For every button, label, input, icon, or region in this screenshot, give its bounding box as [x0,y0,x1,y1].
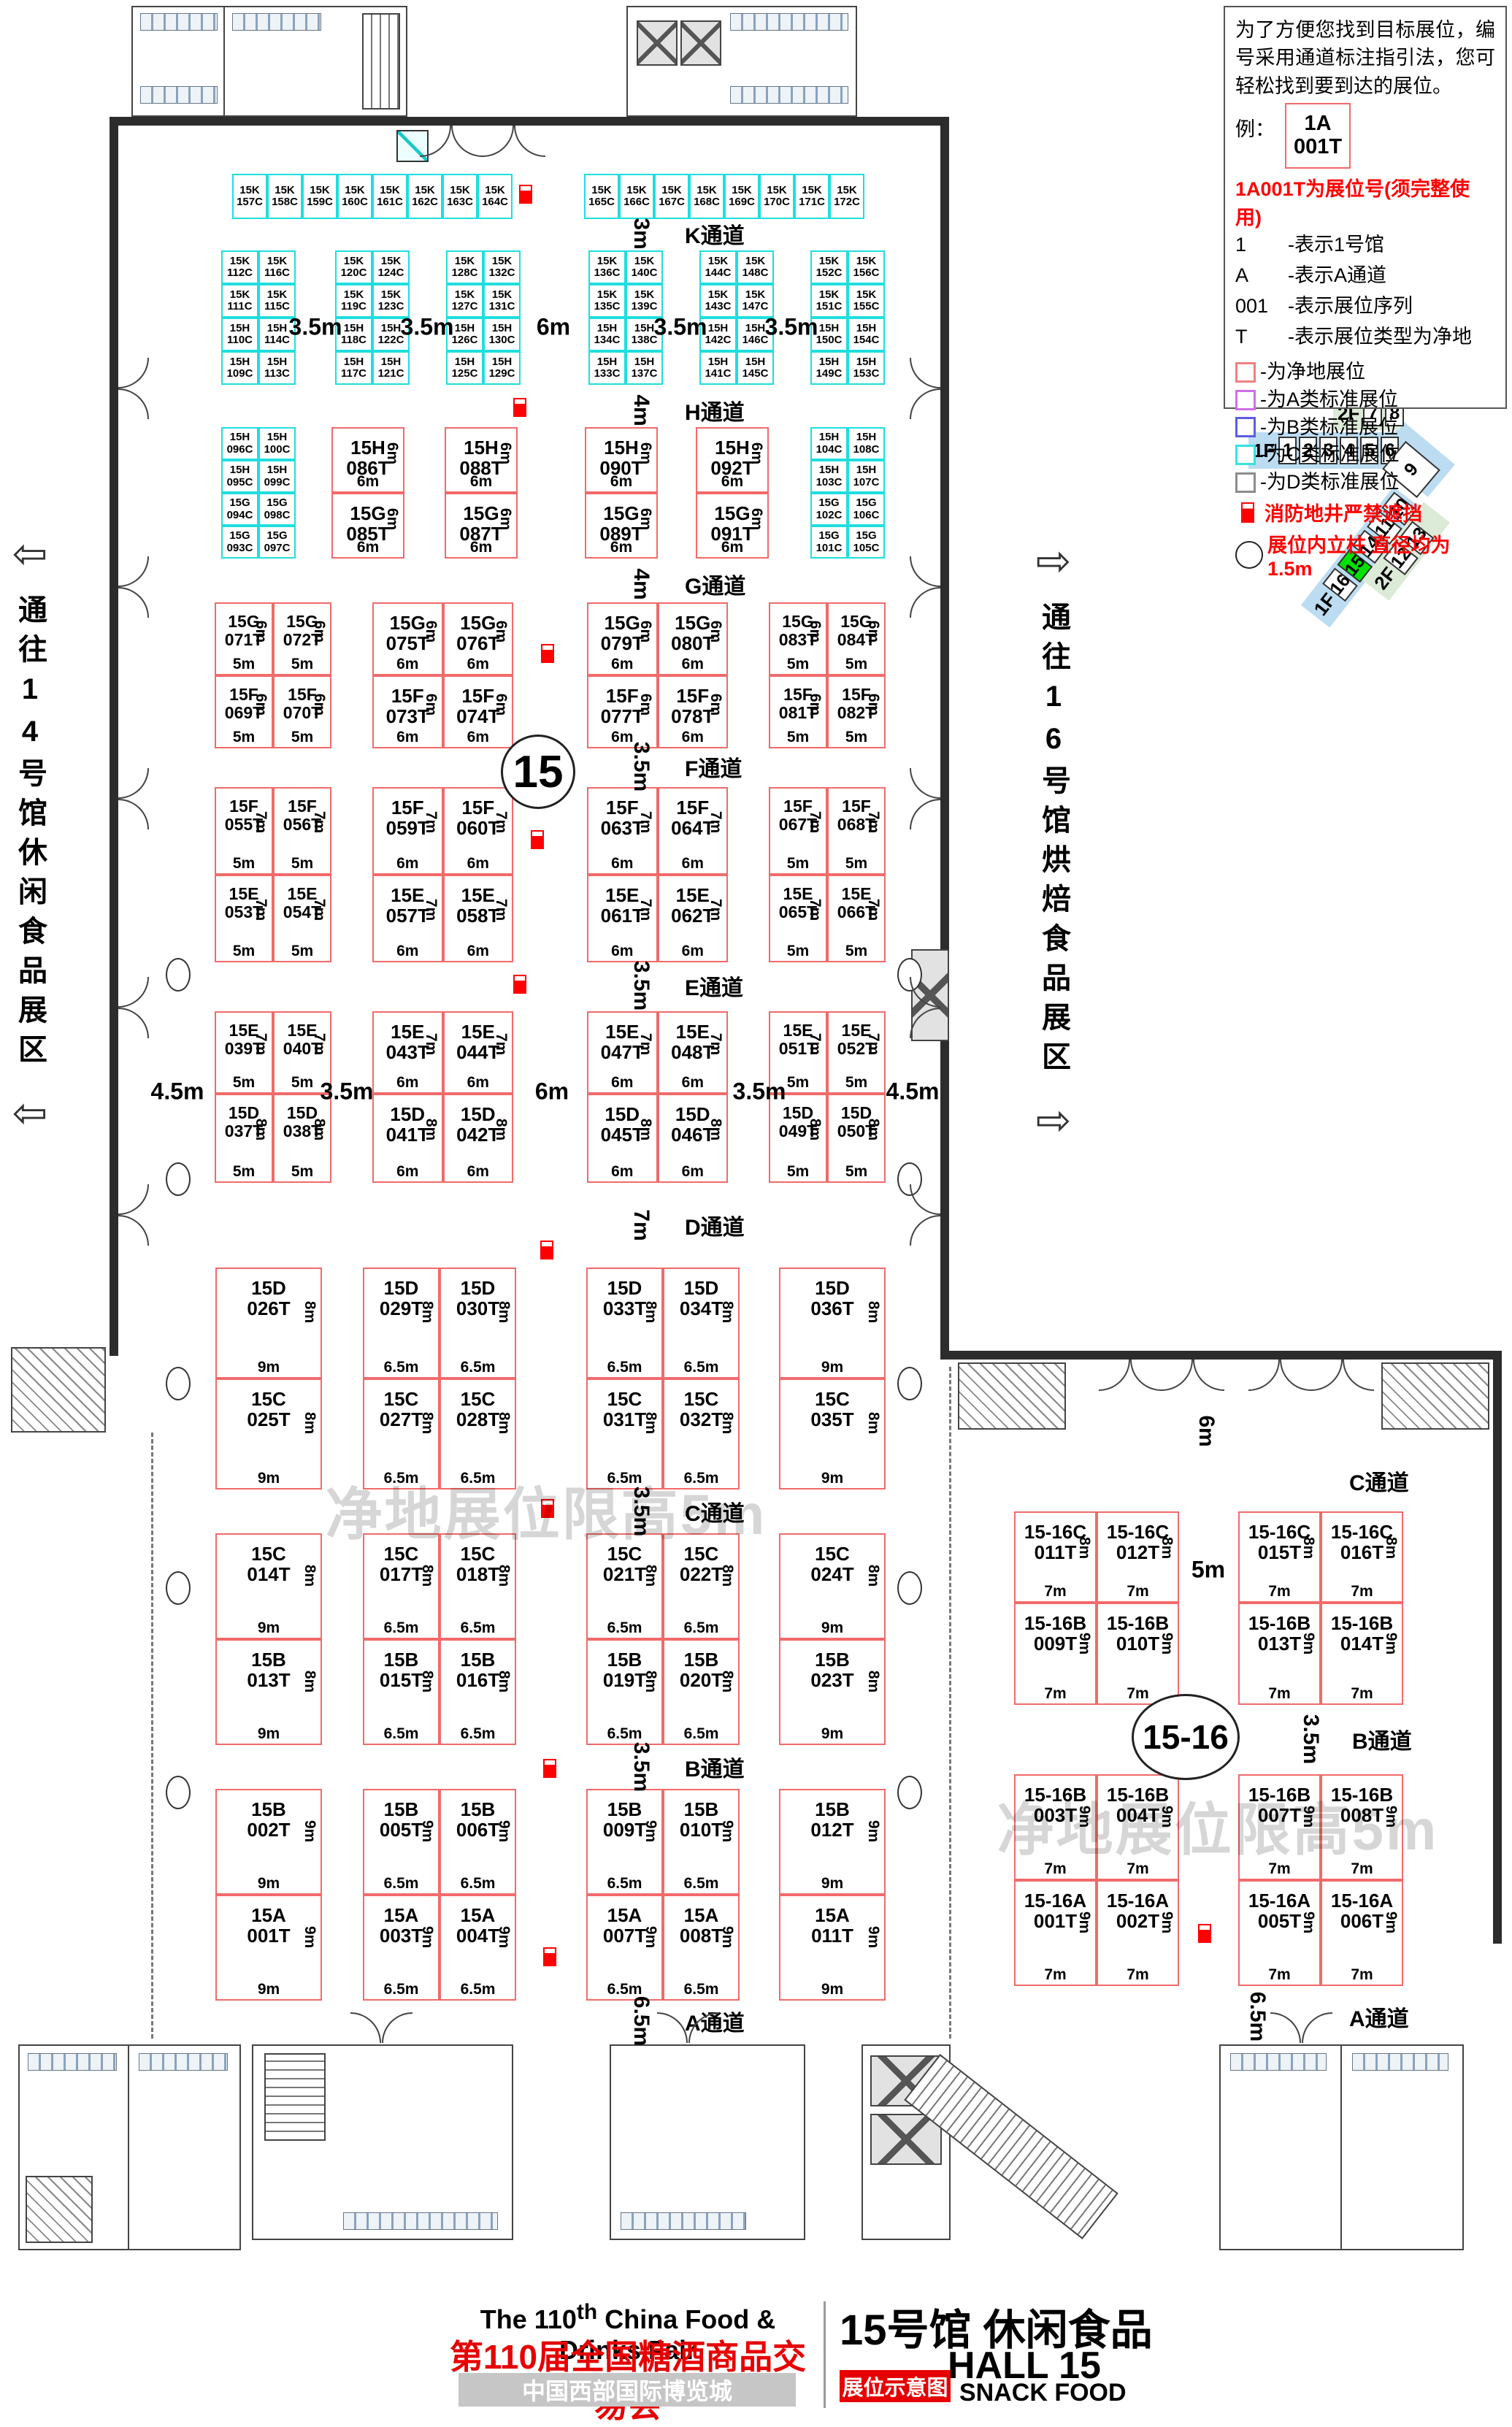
booth-15K-162C[interactable]: 15K162C [407,174,442,219]
booth-15K-164C[interactable]: 15K164C [477,174,513,219]
aisle-name-label: E通道 [685,970,743,1002]
booth-15K-166C[interactable]: 15K166C [619,174,654,219]
booth-15H-133C[interactable]: 15H133C [588,351,626,385]
door-arc-icon [910,358,940,388]
aisle-width-label: 3.5m [629,742,653,791]
dimension-label: 8m [1382,1537,1400,1559]
door-arc-icon [483,126,514,157]
boundary-dashed-line [151,1433,153,2039]
booth-15K-161C[interactable]: 15K161C [372,174,407,219]
gap-width-label: 3.5m [321,1078,374,1105]
booth-15K-172C[interactable]: 15K172C [829,174,864,219]
booth-15G-097C[interactable]: 15G097C [258,526,296,559]
dimension-label: 9m [821,1619,843,1637]
booth-15H-154C[interactable]: 15H154C [848,318,885,351]
dimension-label: 7m [422,1033,440,1055]
gap-width-label: 5m [1191,1557,1225,1584]
legend-pillar-note: 展位内立柱 直径均为1.5m [1267,529,1495,580]
booth-15K-123C[interactable]: 15K123C [372,284,410,318]
dimension-label: 5m [787,1163,809,1181]
dimension-label: 8m [642,1671,659,1692]
booth-15K-132C[interactable]: 15K132C [483,250,521,284]
dimension-label: 5m [845,855,867,873]
dimension-label: 5m [787,729,809,746]
booth-15K-171C[interactable]: 15K171C [794,174,829,219]
hall-number-circle: 15 [501,735,575,809]
dimension-label: 5m [233,1163,255,1181]
dimension-label: 6m [682,729,704,746]
booth-15K-156C[interactable]: 15K156C [848,250,885,284]
dimension-label: 6m [357,473,379,491]
booth-15K-116C[interactable]: 15K116C [258,250,296,284]
dimension-label: 8m [418,1301,436,1323]
dimension-label: 8m [1158,1537,1175,1559]
fire-well-icon [543,1947,556,1966]
dimension-label: 9m [301,1926,318,1948]
dimension-label: 8m [301,1412,318,1434]
dimension-label: 5m [845,1074,867,1092]
dimension-label: 8m [495,1565,513,1587]
dimension-label: 7m [252,811,269,833]
dimension-label: 7m [1127,1583,1148,1600]
dimension-label: 6m [492,694,510,716]
toilet-fixtures [621,2212,746,2230]
dimension-label: 6m [682,943,704,960]
dimension-label: 5m [291,943,313,960]
dimension-label: 5m [291,1074,313,1092]
wall [940,117,949,1360]
dimension-label: 9m [258,1725,280,1743]
dimension-label: 9m [495,1820,513,1842]
booth-15H-107C[interactable]: 15H107C [848,460,885,493]
booth-15K-148C[interactable]: 15K148C [737,250,774,284]
door-arc-icon [910,768,940,799]
door-arc-icon [420,126,451,157]
booth-15K-147C[interactable]: 15K147C [737,284,774,318]
fire-well-icon [1198,1924,1211,1943]
booth-15K-151C[interactable]: 15K151C [810,284,848,318]
aisle-width-label: 6.5m [1245,1992,1270,2041]
fire-well-icon [543,1759,556,1778]
hall-title-sub: SNACK FOOD [959,2379,1127,2407]
dimension-label: 9m [1300,1633,1317,1655]
dimension-label: 7m [310,1033,328,1055]
dimension-label: 7m [492,899,510,921]
door-arc-icon [910,556,940,587]
gap-width-label: 4.5m [886,1078,940,1105]
aisle-width-label: 4m [629,394,653,426]
toilet-fixtures [232,13,321,31]
booth-15G-106C[interactable]: 15G106C [848,493,885,526]
dimension-label: 6m [467,729,489,746]
dimension-label: 6.5m [607,1725,642,1743]
booth-15H-095C[interactable]: 15H095C [221,460,258,493]
wall [110,117,949,126]
booth-15H-117C[interactable]: 15H117C [335,351,372,385]
gap-width-label: 6m [535,1078,569,1105]
dimension-label: 7m [252,899,269,921]
door-arc-icon [1343,1360,1374,1391]
aisle-name-label: B通道 [1352,1723,1412,1755]
elevator [637,20,678,66]
dimension-label: 6m [707,694,724,716]
dimension-label: 9m [418,1820,436,1842]
dimension-label: 5m [787,943,809,960]
dimension-label: 7m [864,811,882,833]
door-arc-icon [1130,1360,1162,1391]
dimension-label: 6m [611,1074,633,1092]
dimension-label: 5m [787,855,809,873]
dimension-label: 8m [642,1565,659,1587]
dimension-label: 8m [301,1301,318,1323]
door-arc-icon [910,388,940,419]
booth-15K-111C[interactable]: 15K111C [221,284,258,318]
dimension-label: 6m [396,1074,418,1092]
dimension-label: 6.5m [684,1725,719,1743]
dimension-label: 6m [310,621,328,643]
dimension-label: 6m [721,473,743,491]
gap-width-label: 3.5m [289,314,342,341]
booth-15H-141C[interactable]: 15H141C [699,351,737,385]
door-arc-icon [1270,2012,1301,2043]
booth-15K-127C[interactable]: 15K127C [446,284,483,318]
booth-15K-168C[interactable]: 15K168C [689,174,724,219]
toilet-fixtures [139,2053,228,2071]
door-gap [0,146,9,207]
toilet-fixtures [28,2053,117,2071]
legend-code-item: A-表示A通道 [1235,261,1495,291]
door-gap [0,391,9,453]
gap-width-label: 4.5m [151,1078,204,1105]
dimension-label: 5m [787,1074,809,1092]
exit-to-hall-16: ⇨ 通往16号馆烘焙食品展区 ⇨ [1028,540,1079,1142]
booth-15K-170C[interactable]: 15K170C [759,174,794,219]
dimension-label: 7m [1044,1583,1066,1600]
booth-15K-136C[interactable]: 15K136C [588,250,626,284]
booth-15G-098C[interactable]: 15G098C [258,493,296,526]
booth-15H-129C[interactable]: 15H129C [483,351,521,385]
pillar-icon [166,958,191,992]
title-en-sup: th [577,2300,597,2324]
dimension-label: 6m [611,1163,633,1181]
dimension-label: 8m [310,1119,328,1140]
dimension-label: 6m [467,656,489,673]
dimension-label: 5m [233,943,255,960]
dimension-label: 6.5m [607,1875,642,1893]
legend-example-line1: 1A [1304,112,1331,136]
dimension-label: 8m [718,1412,736,1434]
fire-well-icon [531,830,544,849]
aisle-name-label: K通道 [685,218,745,250]
booth-15K-120C[interactable]: 15K120C [335,250,372,284]
door-arc-icon [910,799,940,829]
dimension-label: 7m [252,1033,269,1055]
booth-15G-094C[interactable]: 15G094C [221,493,258,526]
dimension-label: 9m [821,1981,843,1998]
booth-15G-093C[interactable]: 15G093C [221,526,258,559]
booth-15K-128C[interactable]: 15K128C [446,250,483,284]
exit-to-hall-14: ⇦ 通往14号馆休闲食品展区 ⇦ [4,533,55,1135]
booth-15K-139C[interactable]: 15K139C [626,284,663,318]
dimension-label: 6.5m [684,1619,719,1637]
legend-example-booth: 1A 001T [1285,103,1351,169]
dimension-label: 8m [495,1412,513,1434]
dimension-label: 7m [864,1033,882,1055]
dimension-label: 6m [864,694,882,716]
legend-type-item: -为A类标准展位 [1235,387,1495,413]
booth-15K-119C[interactable]: 15K119C [335,284,372,318]
pillar-icon [166,1162,191,1196]
toilet-fixtures [1230,2053,1327,2071]
booth-15H-153C[interactable]: 15H153C [848,351,885,385]
booth-15K-159C[interactable]: 15K159C [302,174,337,219]
aisle-name-label: D通道 [685,1209,745,1241]
dimension-label: 8m [864,1565,882,1587]
watermark-height-limit: 净地展位限高5m [997,1784,1439,1866]
door-arc-icon [514,126,545,157]
dimension-label: 9m [864,1926,882,1948]
dimension-label: 7m [310,811,328,833]
door-arc-icon [1280,1360,1311,1391]
wall [128,2044,129,2250]
aisle-width-label: 3.5m [629,961,653,1011]
booth-15H-121C[interactable]: 15H121C [372,351,410,385]
watermark-height-limit: 净地展位限高5m [326,1469,767,1551]
dimension-label: 8m [418,1412,436,1434]
dimension-label: 7m [1351,1583,1373,1600]
booth-15H-108C[interactable]: 15H108C [848,427,885,460]
dimension-label: 5m [233,729,255,746]
boundary-dashed-line [949,1367,951,2039]
booth-15G-101C[interactable]: 15G101C [810,526,848,559]
dimension-label: 9m [1382,1633,1400,1655]
aisle-name-label: B通道 [685,1751,745,1783]
booth-15K-158C[interactable]: 15K158C [267,174,302,219]
booth-15K-112C[interactable]: 15K112C [221,250,258,284]
legend-type-list: -为净地展位-为A类标准展位-为B类标准展位-为C类标准展位-为D类标准展位 [1235,359,1495,495]
aisle-width-label: 4m [629,568,653,599]
floorplan-page: 为了方便您找到目标展位，编号采用通道标注指引法，您可轻松找到要到达的展位。 例：… [0,0,1512,2415]
booth-15H-125C[interactable]: 15H125C [446,351,483,385]
toilet-fixtures [140,86,218,104]
dimension-label: 6.5m [607,1619,642,1637]
pillar-icon [897,1367,922,1400]
dimension-label: 8m [301,1565,318,1587]
booth-15K-124C[interactable]: 15K124C [372,250,410,284]
legend-code-item: T-表示展位类型为净地 [1235,322,1495,353]
door-arc-icon [118,1184,149,1215]
toilet-fixtures [1352,2053,1448,2071]
booth-type-swatch [1235,362,1256,383]
dimension-label: 8m [418,1671,436,1692]
dimension-label: 8m [252,1119,269,1140]
dimension-label: 6m [252,694,269,716]
booth-15K-140C[interactable]: 15K140C [626,250,663,284]
booth-15H-103C[interactable]: 15H103C [810,460,848,493]
door-arc-icon [118,977,149,1008]
legend-type-item: -为C类标准展位 [1235,442,1495,468]
aisle-width-label: 7m [629,1209,653,1241]
dimension-label: 7m [1268,1583,1290,1600]
dimension-label: 6m [496,442,514,464]
aisle-width-label: 3.5m [629,1742,653,1792]
dimension-label: 9m [258,1470,280,1487]
door-arc-icon [910,1184,940,1215]
booth-15K-160C[interactable]: 15K160C [337,174,372,219]
dimension-label: 6m [396,1163,418,1181]
door-arc-icon [451,126,483,157]
fire-well-icon [519,185,532,204]
booth-15K-144C[interactable]: 15K144C [699,250,737,284]
dimension-label: 6.5m [461,1725,496,1743]
legend-code-list: 1-表示1号馆A-表示A通道001-表示展位序列T-表示展位类型为净地 [1235,230,1495,352]
booth-15H-145C[interactable]: 15H145C [737,351,774,385]
dimension-label: 7m [1268,1966,1290,1984]
dimension-label: 9m [258,1619,280,1637]
dimension-label: 9m [1075,1633,1093,1655]
loading-dock [11,1347,106,1433]
booth-15H-130C[interactable]: 15H130C [483,318,521,351]
booth-15H-096C[interactable]: 15H096C [221,427,258,460]
booth-15H-110C[interactable]: 15H110C [221,318,258,351]
dimension-label: 7m [492,811,510,833]
dimension-label: 5m [291,729,313,746]
door-arc-icon [1162,1360,1193,1391]
booth-15G-105C[interactable]: 15G105C [848,526,885,559]
door-gap [0,269,9,330]
dimension-label: 6m [467,1163,489,1181]
dimension-label: 6.5m [684,1981,719,1998]
dimension-label: 7m [1127,1685,1148,1703]
dimension-label: 9m [1158,1912,1175,1933]
dimension-label: 5m [291,656,313,673]
booth-15H-134C[interactable]: 15H134C [588,318,626,351]
booth-15H-137C[interactable]: 15H137C [626,351,663,385]
booth-15K-163C[interactable]: 15K163C [442,174,477,219]
dimension-label: 9m [864,1820,882,1842]
dimension-label: 6.5m [684,1359,719,1376]
booth-15K-155C[interactable]: 15K155C [848,284,885,318]
dimension-label: 6m [396,729,418,746]
booth-15K-131C[interactable]: 15K131C [483,284,521,318]
legend-example-line2: 001T [1294,136,1342,159]
plan-tag-badge[interactable]: 展位示意图 [840,2370,951,2402]
booth-15H-100C[interactable]: 15H100C [258,427,296,460]
door-gap [0,453,9,514]
booth-15K-152C[interactable]: 15K152C [810,250,848,284]
dimension-label: 8m [301,1671,318,1692]
dimension-label: 9m [495,1926,513,1948]
booth-15H-099C[interactable]: 15H099C [258,460,296,493]
fire-well-icon [513,398,526,417]
door-arc-icon [118,1215,149,1246]
dimension-label: 8m [718,1565,736,1587]
dimension-label: 6m [383,442,401,464]
dimension-label: 6m [496,508,514,530]
booth-15K-143C[interactable]: 15K143C [699,284,737,318]
door-arc-icon [1311,1360,1343,1391]
door-arc-icon [118,799,149,829]
gap-width-label: 6m [537,314,570,341]
dimension-label: 5m [845,656,867,673]
dimension-label: 6.5m [384,1981,419,1998]
dimension-label: 6m [682,1163,704,1181]
aisle-width-label: 6m [1194,1415,1219,1446]
booth-15G-102C[interactable]: 15G102C [810,493,848,526]
dimension-label: 9m [301,1820,318,1842]
booth-15K-115C[interactable]: 15K115C [258,284,296,318]
dimension-label: 8m [642,1301,659,1323]
dimension-label: 9m [1300,1912,1317,1933]
booth-15H-109C[interactable]: 15H109C [221,351,258,385]
fire-well-icon [513,975,526,994]
booth-15K-167C[interactable]: 15K167C [654,174,689,219]
dimension-label: 8m [707,1119,724,1140]
booth-type-swatch [1235,472,1256,493]
stairs [264,2053,326,2141]
booth-15K-169C[interactable]: 15K169C [724,174,759,219]
pillar-icon [166,1776,191,1809]
dimension-label: 6m [396,656,418,673]
dimension-label: 7m [310,899,328,921]
dimension-label: 6m [467,943,489,960]
booth-15K-157C[interactable]: 15K157C [232,174,267,219]
booth-15K-135C[interactable]: 15K135C [588,284,626,318]
dimension-label: 7m [422,899,440,921]
wall [1493,1351,1502,1944]
dimension-label: 6m [611,943,633,960]
dimension-label: 8m [422,1119,440,1140]
dimension-label: 8m [864,1671,882,1692]
dimension-label: 6m [383,508,401,530]
dimension-label: 7m [422,811,440,833]
booth-type-swatch [1235,445,1256,465]
dimension-label: 9m [258,1981,280,1998]
door-arc-icon [118,587,149,618]
booth-15H-149C[interactable]: 15H149C [810,351,848,385]
legend-example-label: 例： [1235,113,1275,142]
dimension-label: 6m [611,855,633,873]
gap-width-label: 3.5m [765,314,818,341]
loading-dock [1381,1362,1489,1430]
door-arc-icon [118,768,149,799]
booth-15H-113C[interactable]: 15H113C [258,351,296,385]
dimension-label: 6.5m [384,1725,419,1743]
dimension-label: 7m [707,811,724,833]
dimension-label: 9m [821,1725,843,1743]
dimension-label: 8m [642,1412,659,1434]
dimension-label: 9m [821,1875,843,1893]
dimension-label: 5m [233,1074,255,1092]
dimension-label: 8m [492,1119,510,1140]
dimension-label: 6m [396,943,418,960]
dimension-label: 6.5m [607,1359,642,1376]
dimension-label: 7m [864,899,882,921]
booth-15H-104C[interactable]: 15H104C [810,427,848,460]
booth-15K-165C[interactable]: 15K165C [584,174,619,219]
door-arc-icon [1248,1360,1280,1391]
dimension-label: 7m [806,1033,824,1055]
legend-type-item: -为D类标准展位 [1235,469,1495,496]
dimension-label: 8m [1075,1537,1093,1559]
door-arc-icon [1193,1360,1224,1391]
dimension-label: 6m [637,694,654,716]
booth-type-swatch [1235,390,1256,410]
door-gap [0,0,128,12]
dimension-label: 7m [1351,1685,1373,1703]
dimension-label: 6.5m [384,1619,419,1637]
dimension-label: 7m [1044,1966,1066,1984]
